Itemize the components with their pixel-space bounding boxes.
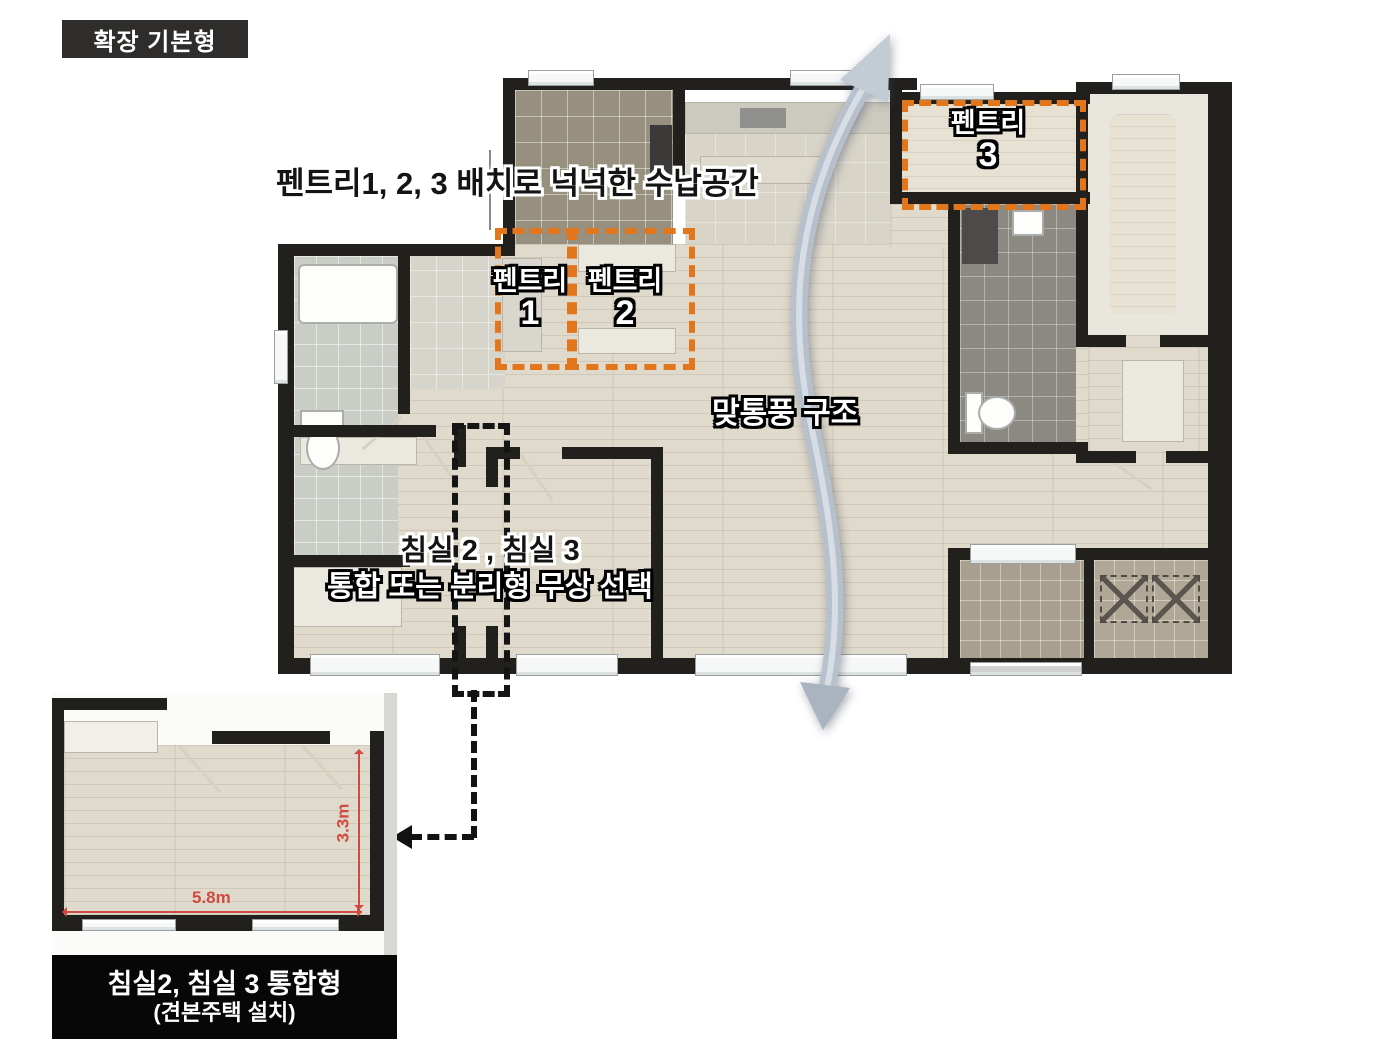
inset-counter xyxy=(64,721,158,753)
inset-wall-top-middle xyxy=(212,731,330,744)
inset-width-label: 5.8m xyxy=(192,888,231,908)
wall-balcony-left xyxy=(948,548,960,672)
corridor-nook-floor xyxy=(890,204,948,248)
wall-study-bottom-b xyxy=(1166,451,1220,463)
wall-study-bottom-a xyxy=(1076,451,1136,463)
inset-height-arrow-top xyxy=(354,749,364,754)
floor-plan-page: 확장 기본형 xyxy=(0,0,1400,1045)
dressing-window xyxy=(1112,74,1180,90)
bathtub xyxy=(298,264,398,324)
living-window xyxy=(695,654,907,676)
bathroom1-window xyxy=(274,330,288,384)
bedroom2-window xyxy=(310,654,440,676)
bathroom2-basin xyxy=(1012,210,1044,236)
pantry3-label-text: 펜트리 xyxy=(918,110,1058,138)
ac-unit-2 xyxy=(1152,575,1200,623)
bathroom2-cabinet xyxy=(962,208,998,264)
wall-bath2-left xyxy=(948,204,960,454)
balcony-bottom-window xyxy=(970,662,1082,676)
entry-window xyxy=(528,70,594,86)
study-rug xyxy=(1122,360,1184,442)
inset-width-arrow-left xyxy=(62,907,67,917)
pantry2-label-text: 펜트리 xyxy=(560,268,690,296)
bedroom3-window xyxy=(516,654,618,676)
ventilation-note: 맞통풍 구조 xyxy=(712,388,858,432)
kitchen-sink xyxy=(740,108,786,128)
inset-wall-left xyxy=(52,698,64,931)
kitchen-window xyxy=(790,70,870,86)
inset-height-arrow-bottom xyxy=(354,905,364,910)
inset-connector-vertical xyxy=(471,690,477,838)
wall-right-outer xyxy=(1208,82,1232,672)
wall-balcony-divider xyxy=(1084,560,1094,672)
wall-top-step-1 xyxy=(890,78,902,104)
combined-bedroom-inset: 5.8m 3.3m xyxy=(52,693,397,955)
kitchen-counter xyxy=(685,102,892,134)
wall-bath2-bottom xyxy=(948,442,1088,454)
wall-dress-study-a xyxy=(1076,335,1126,347)
pantry3-window xyxy=(920,84,994,100)
inset-connector-horizontal xyxy=(410,834,474,840)
living-balcony-window xyxy=(970,544,1076,564)
inset-right-band xyxy=(384,693,397,955)
inset-height-dimension-line xyxy=(358,753,360,911)
wall-left-outer xyxy=(278,244,294,674)
wall-bedroom2-top xyxy=(286,425,436,437)
balcony-floor xyxy=(960,560,1084,660)
inset-caption-line2: (견본주택 설치) xyxy=(153,1000,295,1025)
inset-caption: 침실2, 침실 3 통합형 (견본주택 설치) xyxy=(52,955,397,1039)
inset-width-dimension-line xyxy=(66,911,362,913)
type-badge: 확장 기본형 xyxy=(62,20,248,58)
wall-bath1-right xyxy=(398,244,410,414)
toilet-bowl-2 xyxy=(978,396,1016,430)
pantry2-label: 펜트리 2 xyxy=(560,268,690,330)
pantry3-label: 펜트리 3 xyxy=(918,110,1058,172)
inset-window-2 xyxy=(252,919,339,931)
wall-fridge-divider xyxy=(890,104,902,204)
pantry3-label-number: 3 xyxy=(918,138,1058,173)
pantry2-label-number: 2 xyxy=(560,296,690,331)
ac-unit-1 xyxy=(1100,575,1148,623)
inset-window-1 xyxy=(82,919,176,931)
inset-wall-top-left xyxy=(52,698,167,710)
wall-bedroom3-top-b xyxy=(562,447,663,459)
dressing-room-center xyxy=(1110,114,1176,314)
inset-wall-right xyxy=(370,731,384,923)
pantry-note: 펜트리1, 2, 3 배치로 넉넉한 수납공간 xyxy=(276,158,759,203)
bedroom-note-line2: 통합 또는 분리형 무상 선택 xyxy=(300,563,680,605)
wall-top-left-body xyxy=(278,244,503,256)
inset-height-label: 3.3m xyxy=(333,804,353,843)
wall-dress-study-b xyxy=(1160,335,1220,347)
inset-caption-line1: 침실2, 침실 3 통합형 xyxy=(108,969,342,1000)
